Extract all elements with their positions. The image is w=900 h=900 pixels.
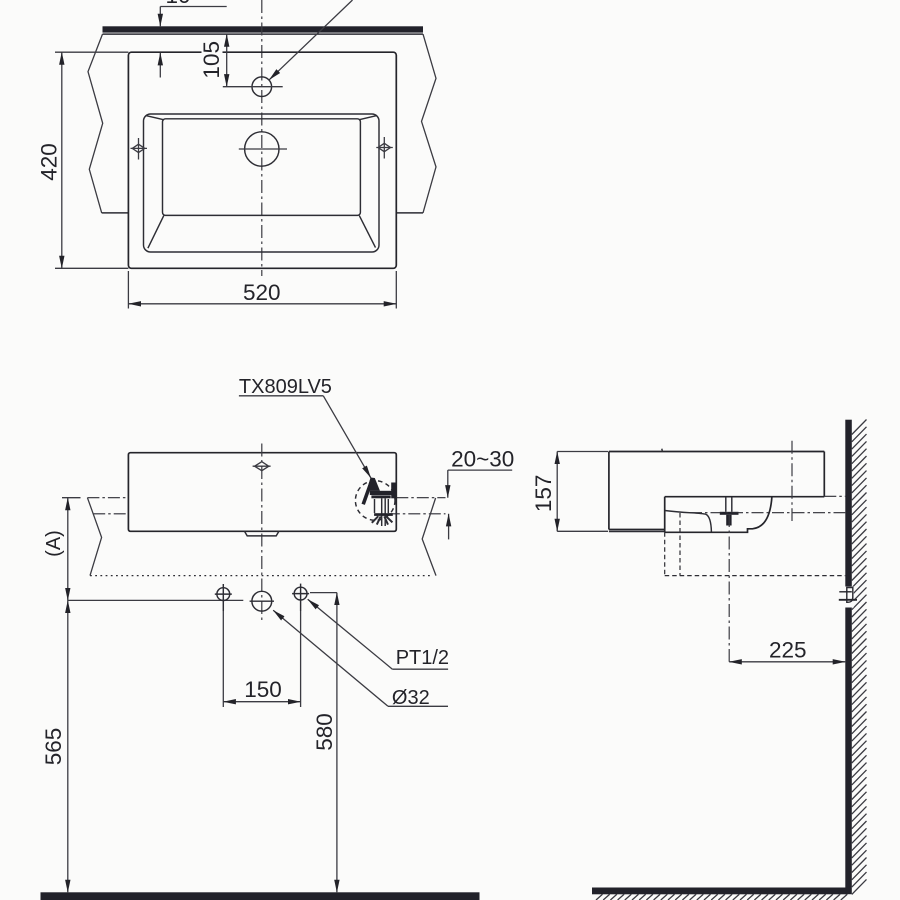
svg-text:TX809LV5: TX809LV5 — [239, 376, 332, 398]
svg-text:420: 420 — [36, 143, 61, 181]
svg-text:105: 105 — [199, 41, 224, 79]
svg-text:225: 225 — [769, 638, 807, 663]
svg-text:(A): (A) — [43, 530, 65, 557]
svg-text:PT1/2: PT1/2 — [396, 647, 449, 669]
svg-text:520: 520 — [243, 280, 281, 305]
svg-text:20~30: 20~30 — [451, 447, 514, 472]
svg-text:565: 565 — [41, 728, 66, 766]
svg-text:10: 10 — [165, 0, 190, 8]
svg-text:580: 580 — [312, 713, 337, 751]
svg-text:Ø32: Ø32 — [392, 687, 430, 709]
svg-text:150: 150 — [244, 677, 282, 702]
svg-text:157: 157 — [531, 475, 556, 513]
